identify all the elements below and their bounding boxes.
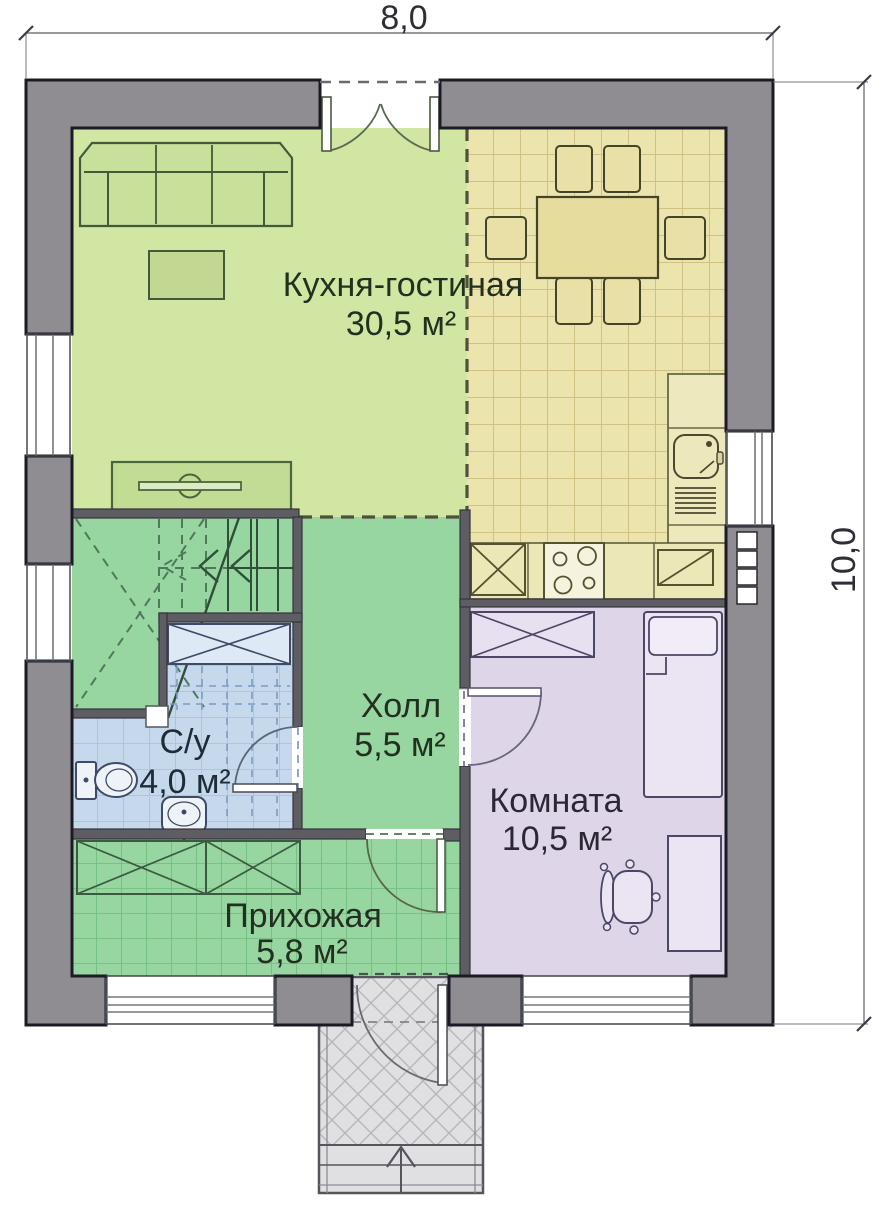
svg-text:Комната: Комната xyxy=(489,782,622,820)
svg-text:Холл: Холл xyxy=(361,687,441,725)
svg-text:С/у: С/у xyxy=(160,723,211,761)
svg-text:5,5 м²: 5,5 м² xyxy=(354,726,445,764)
svg-text:4,0 м²: 4,0 м² xyxy=(139,763,230,801)
svg-text:5,8 м²: 5,8 м² xyxy=(256,933,347,971)
svg-text:30,5 м²: 30,5 м² xyxy=(346,305,456,343)
svg-text:Кухня-гостиная: Кухня-гостиная xyxy=(283,266,524,304)
svg-text:8,0: 8,0 xyxy=(380,0,427,37)
svg-text:10,0: 10,0 xyxy=(825,527,863,593)
svg-text:Прихожая: Прихожая xyxy=(224,897,382,935)
svg-text:10,5 м²: 10,5 м² xyxy=(502,820,612,858)
